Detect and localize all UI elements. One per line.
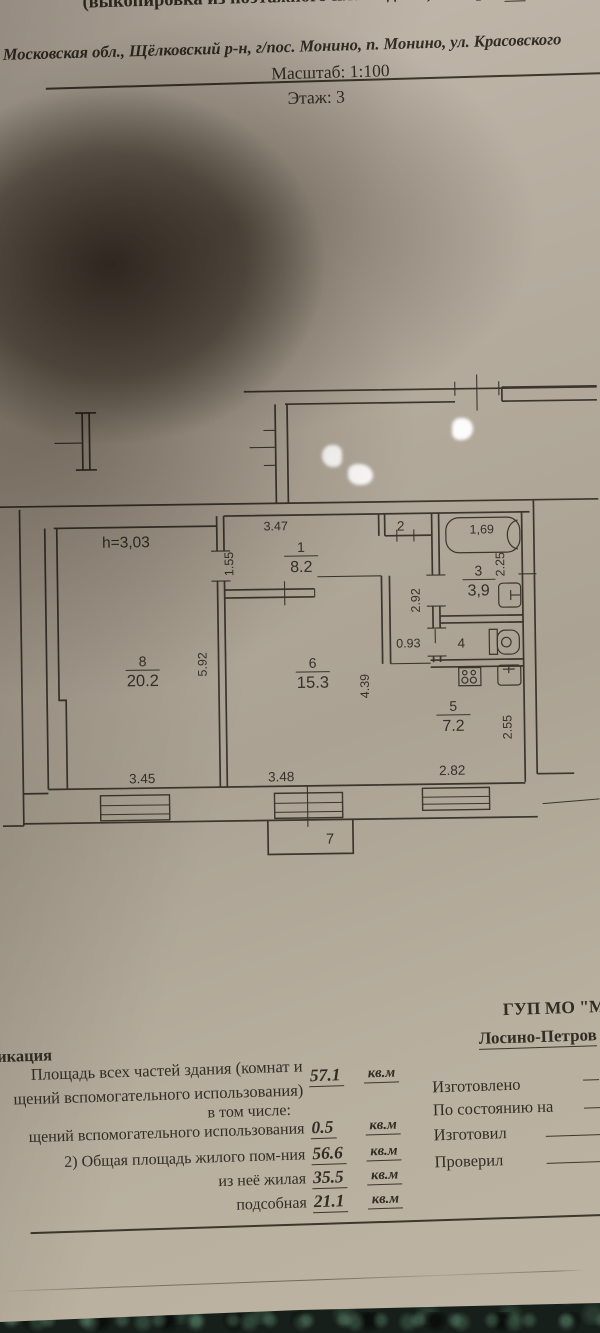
asof-blank-line bbox=[584, 1107, 600, 1109]
prepared-blank-line bbox=[546, 1134, 600, 1137]
checked-blank-line bbox=[547, 1161, 600, 1164]
row2-unit: кв.м bbox=[365, 1116, 401, 1135]
row1-value: 57.1 bbox=[308, 1064, 343, 1087]
row5-unit: кв.м bbox=[367, 1190, 403, 1209]
asof-label: По состоянию на bbox=[433, 1097, 554, 1121]
checked-label: Проверил bbox=[434, 1150, 503, 1172]
row3-unit: кв.м bbox=[366, 1142, 402, 1161]
row3-value: 56.6 bbox=[311, 1142, 346, 1165]
row4-label: из неё жилая bbox=[1, 1170, 306, 1198]
made-label: Изготовлено bbox=[432, 1075, 521, 1098]
document-photo: (выкопировка из поэтажного плана дома) л… bbox=[0, 0, 600, 1333]
row4-unit: кв.м bbox=[367, 1166, 403, 1185]
made-blank-line bbox=[583, 1079, 599, 1081]
footer-block: ГУП МО "М Лосино-Петров икация Площадь в… bbox=[0, 0, 600, 1333]
row5-value: 21.1 bbox=[312, 1190, 347, 1213]
row2-value: 0.5 bbox=[310, 1116, 337, 1139]
row1-unit: кв.м bbox=[364, 1064, 400, 1083]
prepared-label: Изготовил bbox=[433, 1123, 507, 1145]
row3-label: 2) Общая площадь жилого пом-ния bbox=[0, 1146, 305, 1174]
org-branch: Лосино-Петров bbox=[478, 1025, 597, 1050]
org-name: ГУП МО "М bbox=[503, 996, 600, 1020]
row4-value: 35.5 bbox=[312, 1166, 347, 1189]
row5-label: подсобная bbox=[2, 1194, 307, 1222]
